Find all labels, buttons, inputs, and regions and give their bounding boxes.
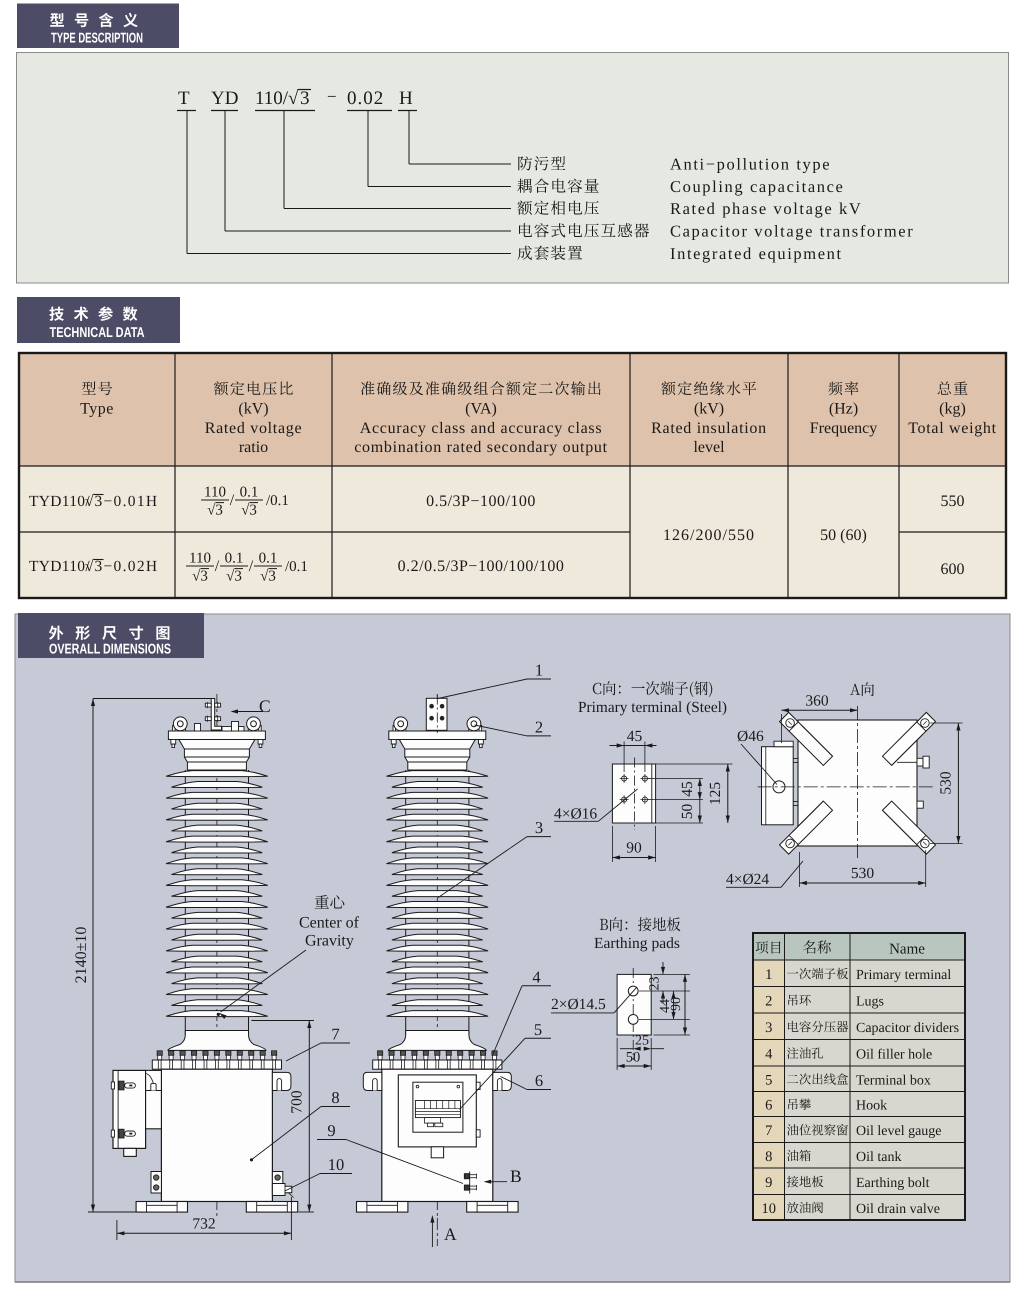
svg-text:−: − [327, 87, 337, 106]
svg-text:TYD110/: TYD110/ [29, 558, 90, 575]
svg-text:6: 6 [765, 1098, 772, 1114]
svg-text:45: 45 [627, 728, 643, 745]
svg-text:3: 3 [300, 88, 310, 109]
svg-text:ratio: ratio [239, 439, 268, 456]
svg-text:126/200/550: 126/200/550 [663, 527, 755, 544]
svg-text:5: 5 [534, 1020, 542, 1039]
svg-text:Total weight: Total weight [908, 420, 997, 437]
svg-text:(Hz): (Hz) [829, 401, 858, 418]
svg-text:Integrated equipment: Integrated equipment [670, 244, 843, 263]
svg-text:Lugs: Lugs [856, 994, 884, 1009]
svg-text:23: 23 [648, 977, 663, 991]
svg-text:T: T [178, 88, 190, 109]
svg-text:√3: √3 [226, 569, 242, 585]
svg-text:1: 1 [535, 661, 543, 680]
svg-text:3: 3 [95, 493, 103, 510]
svg-text:Capacitor dividers: Capacitor dividers [856, 1021, 959, 1036]
svg-text:50: 50 [679, 804, 696, 820]
svg-text:3: 3 [95, 558, 103, 575]
svg-text:10: 10 [328, 1155, 345, 1174]
svg-text:Name: Name [889, 942, 925, 958]
svg-text:7: 7 [765, 1123, 772, 1139]
svg-text:2: 2 [535, 717, 543, 736]
svg-text:C: C [259, 696, 271, 716]
svg-text:Type: Type [80, 401, 114, 418]
svg-text:Oil tank: Oil tank [856, 1150, 902, 1165]
svg-text:√: √ [85, 558, 94, 575]
svg-text:4: 4 [532, 967, 540, 986]
svg-text:Gravity: Gravity [305, 933, 354, 950]
svg-text:Center of: Center of [299, 915, 360, 932]
svg-text:90: 90 [626, 840, 642, 857]
svg-text:Frequency: Frequency [810, 420, 878, 437]
svg-text:10: 10 [762, 1201, 777, 1217]
svg-text:Earthing pads: Earthing pads [594, 935, 680, 952]
svg-text:2140±10: 2140±10 [73, 927, 90, 984]
svg-text:1: 1 [765, 967, 772, 983]
svg-text:732: 732 [192, 1216, 215, 1233]
svg-text:700: 700 [289, 1090, 306, 1114]
svg-text:2×Ø14.5: 2×Ø14.5 [551, 996, 606, 1013]
svg-text:A: A [444, 1224, 457, 1244]
svg-text:H: H [399, 88, 413, 109]
svg-text:/: / [230, 492, 235, 509]
svg-text:4: 4 [765, 1046, 773, 1062]
svg-text:level: level [693, 439, 725, 456]
svg-text:√3: √3 [260, 569, 276, 585]
svg-text:0.1: 0.1 [225, 551, 244, 567]
svg-text:4×Ø16: 4×Ø16 [554, 806, 597, 823]
svg-text:8: 8 [331, 1088, 339, 1107]
svg-text:110: 110 [189, 551, 211, 567]
svg-text:Coupling capacitance: Coupling capacitance [670, 177, 844, 196]
svg-text:45: 45 [679, 781, 696, 797]
svg-text:Primary terminal (Steel): Primary terminal (Steel) [578, 699, 727, 716]
svg-text:0.1: 0.1 [259, 551, 278, 567]
svg-text:7: 7 [331, 1025, 339, 1044]
svg-text:8: 8 [765, 1149, 772, 1165]
svg-text:Primary terminal: Primary terminal [856, 968, 951, 983]
svg-text:(VA): (VA) [465, 401, 497, 418]
svg-text:550: 550 [941, 493, 965, 510]
svg-text:/: / [215, 558, 220, 575]
svg-text:Oil level gauge: Oil level gauge [856, 1124, 942, 1139]
svg-text:√: √ [288, 88, 299, 109]
svg-text:−0.02H: −0.02H [104, 558, 159, 575]
svg-text:Terminal box: Terminal box [856, 1073, 931, 1088]
svg-text:360: 360 [805, 693, 829, 710]
svg-text:Capacitor voltage transforme: Capacitor voltage transformer [670, 222, 914, 241]
svg-text:Accuracy class and accuracy: Accuracy class and accuracy class [360, 420, 603, 437]
svg-text:Earthing bolt: Earthing bolt [856, 1176, 930, 1191]
svg-text:0.02: 0.02 [347, 88, 384, 109]
svg-text:50 (60): 50 (60) [820, 527, 867, 544]
svg-text:/: / [249, 558, 254, 575]
svg-text:√3: √3 [241, 503, 257, 519]
svg-text:0.1: 0.1 [240, 485, 259, 501]
svg-text:4×Ø24: 4×Ø24 [726, 871, 769, 888]
svg-text:combination rated secondary: combination rated secondary output [354, 439, 608, 456]
svg-text:(kV): (kV) [694, 401, 724, 418]
svg-text:5: 5 [765, 1072, 772, 1088]
svg-text:√: √ [85, 493, 94, 510]
svg-text:−0.01H: −0.01H [104, 493, 159, 510]
svg-text:9: 9 [327, 1121, 335, 1140]
svg-text:9: 9 [765, 1175, 772, 1191]
svg-text:B: B [510, 1166, 522, 1186]
svg-text:Rated voltage: Rated voltage [205, 420, 303, 437]
svg-text:2: 2 [765, 993, 772, 1009]
svg-text:Ø46: Ø46 [737, 728, 764, 745]
svg-text:Oil filler hole: Oil filler hole [856, 1047, 932, 1062]
svg-text:600: 600 [941, 561, 965, 578]
svg-text:√3: √3 [207, 503, 223, 519]
svg-text:0.2/0.5/3P−100/100/100: 0.2/0.5/3P−100/100/100 [398, 558, 565, 575]
svg-text:YD: YD [211, 88, 238, 109]
svg-text:√3: √3 [192, 569, 208, 585]
svg-text:3: 3 [535, 818, 543, 837]
svg-text:25: 25 [635, 1034, 649, 1049]
svg-text:110: 110 [204, 485, 226, 501]
svg-text:50: 50 [626, 1050, 641, 1066]
svg-text:6: 6 [535, 1071, 543, 1090]
svg-text:TECHNICAL DATA: TECHNICAL DATA [50, 325, 145, 341]
svg-text:530: 530 [851, 865, 875, 882]
svg-text:Oil drain valve: Oil drain valve [856, 1202, 940, 1217]
svg-text:(kV): (kV) [238, 401, 268, 418]
svg-text:Anti−pollution type: Anti−pollution type [670, 155, 831, 174]
svg-text:TYD110/: TYD110/ [29, 493, 90, 510]
svg-text:110/: 110/ [255, 88, 289, 109]
svg-text:OVERALL DIMENSIONS: OVERALL DIMENSIONS [49, 642, 171, 658]
svg-text:125: 125 [707, 782, 724, 806]
svg-text:0.5/3P−100/100: 0.5/3P−100/100 [426, 493, 536, 510]
svg-text:90: 90 [669, 997, 684, 1011]
svg-text:(kg): (kg) [939, 401, 966, 418]
svg-text:/0.1: /0.1 [266, 493, 289, 509]
svg-text:/0.1: /0.1 [285, 559, 308, 575]
svg-text:Rated phase voltage kV: Rated phase voltage kV [670, 199, 862, 218]
svg-text:Hook: Hook [856, 1099, 887, 1114]
svg-text:TYPE DESCRIPTION: TYPE DESCRIPTION [51, 31, 143, 47]
svg-text:530: 530 [938, 771, 955, 795]
svg-text:3: 3 [765, 1020, 772, 1036]
svg-text:Rated insulation: Rated insulation [651, 420, 767, 437]
